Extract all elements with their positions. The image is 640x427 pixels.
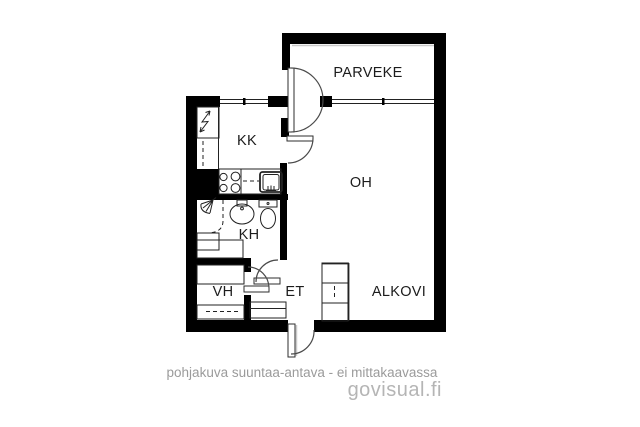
room-label-vh: VH (213, 284, 234, 300)
room-label-et: ET (285, 284, 304, 300)
shower-screen-dashed (209, 200, 223, 233)
oh-window (332, 96, 434, 107)
alkovi-wardrobe (322, 263, 349, 321)
wall-bottom-b (314, 320, 446, 332)
sink-icon (260, 172, 282, 192)
kk-oh-doorway (287, 136, 313, 163)
toilet-icon (259, 200, 277, 229)
washbasin-icon (230, 200, 254, 224)
wall-top-kk-a (186, 96, 220, 107)
wall-kk-kh (190, 194, 288, 200)
floor-plan-page: PARVEKE KK OH KH VH ET ALKOVI pohjakuva … (0, 0, 640, 427)
wall-left (186, 96, 197, 332)
wall-kh-vh (190, 258, 244, 265)
wall-balcony-left (282, 33, 290, 70)
balcony-door (288, 68, 323, 132)
wall-vh-et-jamb (244, 258, 251, 272)
floor-plan-svg: PARVEKE KK OH KH VH ET ALKOVI (0, 0, 640, 427)
wall-balcony-top (282, 33, 446, 44)
room-label-parveke: PARVEKE (333, 65, 402, 81)
room-label-oh: OH (350, 175, 372, 191)
wall-right (434, 33, 446, 332)
wall-oh-window-jamb (320, 96, 332, 107)
stove-icon (220, 169, 241, 194)
brand-logo: govisual.fi (348, 379, 442, 402)
room-label-alkovi: ALKOVI (372, 284, 426, 300)
vh-closet-top (197, 265, 244, 284)
wall-top-kk-b (268, 96, 290, 107)
electrical-panel (197, 107, 219, 138)
lightning-icon (200, 111, 210, 132)
entry-door (288, 324, 314, 357)
bathroom-bench (197, 233, 243, 258)
kk-window (220, 96, 268, 107)
room-label-kh: KH (239, 227, 260, 243)
bathroom-fixtures (197, 198, 277, 259)
room-label-kk: KK (237, 133, 257, 149)
wall-bottom-a (186, 320, 288, 332)
et-shelf (250, 302, 286, 318)
disclaimer-text: pohjakuva suuntaa-antava - ei mittakaava… (0, 365, 604, 380)
